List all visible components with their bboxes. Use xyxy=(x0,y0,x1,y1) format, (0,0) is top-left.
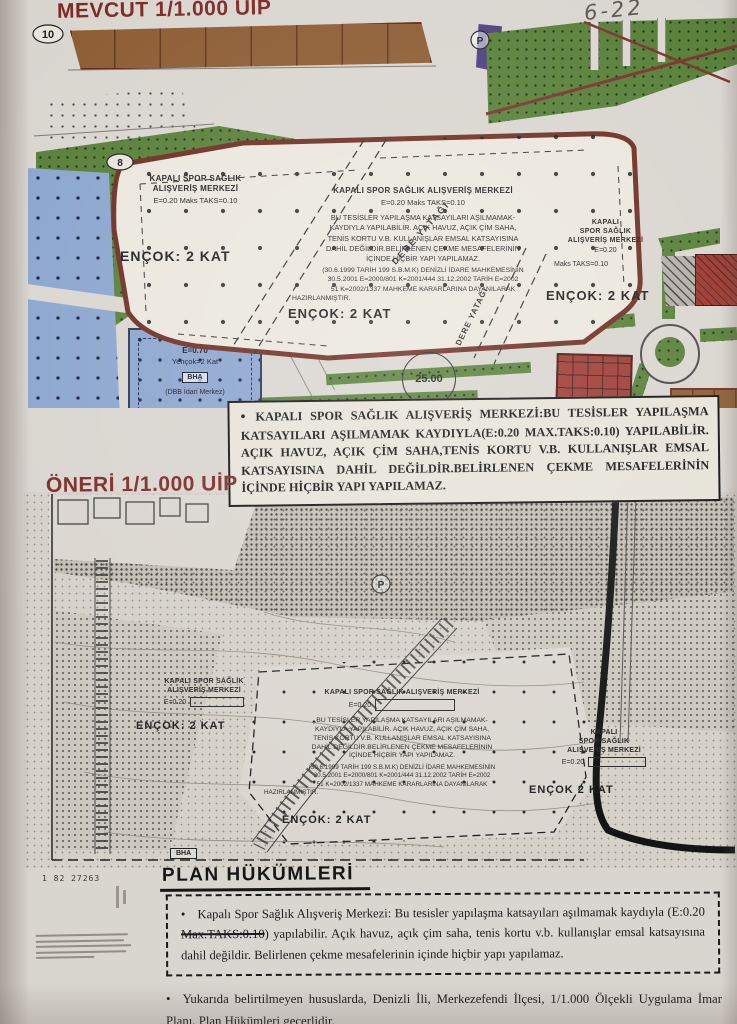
parking-p-label: P xyxy=(378,580,385,591)
provision-line: DAHİL DEĞİLDİR.BELİRLENEN ÇEKME MESAFELE… xyxy=(278,244,568,253)
facility-name-line2: SPOR SAĞLIK xyxy=(548,228,663,237)
facility-name-line3: ALIŞVERİŞ MERKEZİ xyxy=(548,237,663,246)
road-width-10-label: 10 xyxy=(42,29,54,41)
coefficient-value: E=0.20 xyxy=(349,702,371,709)
facility-coefficients: E=0.20 Maks TAKS=0.10 xyxy=(113,196,278,205)
sheet-scale-note: 1 82 27263 xyxy=(42,874,100,883)
max-floors-left: ENÇOK: 2 KAT xyxy=(136,720,225,732)
coefficient-value: E=0.20 xyxy=(562,759,584,766)
main-road-thick xyxy=(596,494,735,850)
map2-center-annotation: KAPALI SPOR SAĞLIK ALIŞVERİŞ MERKEZİ E=0… xyxy=(252,688,552,797)
bullet-icon: • xyxy=(240,410,245,425)
facility-coefficient: E=0.20 xyxy=(252,699,552,711)
provision-line: İÇİNDE HİÇBİR YAPI YAPILAMAZ. xyxy=(278,254,568,263)
building-envelope-symbol xyxy=(375,699,455,711)
margin-tick xyxy=(116,886,119,908)
coefficient-value: E=0.20 xyxy=(164,699,186,706)
map1-left-annotation: KAPALI SPOR SAĞLIK ALIŞVERİŞ MERKEZİ E=0… xyxy=(113,174,278,205)
plan-provision-item-1: •Kapalı Spor Sağlık Alışveriş Merkezi: B… xyxy=(166,892,720,977)
bullet-icon: • xyxy=(166,991,171,1006)
court-ruling-line: 30.5.2001 E=2000/801 K=2001/444 31.12.20… xyxy=(278,276,568,284)
road-edge-lines xyxy=(34,66,436,136)
facility-coefficients: E=0.20 Maks TAKS=0.10 xyxy=(278,198,568,207)
court-ruling-line: 51 K=2002/1337 MAHKEME KARARLARINA DAYAN… xyxy=(252,781,552,789)
court-ruling-line: 30.5.2001 E=2000/801 K=2001/444 31.12.20… xyxy=(252,772,552,780)
zoning-note-box: •KAPALI SPOR SAĞLIK ALIŞVERİŞ MERKEZİ:BU… xyxy=(227,395,720,507)
facility-coefficient: E=0.20 xyxy=(544,757,664,767)
map1-right-annotation: KAPALI SPOR SAĞLIK ALIŞVERİŞ MERKEZİ E=0… xyxy=(548,219,663,270)
plan-provision-item-2: •Yukarıda belirtilmeyen hususlarda, Deni… xyxy=(166,988,722,1024)
map2-right-annotation: KAPALI SPOR SAĞLIK ALIŞVERİŞ MERKEZİ E=0… xyxy=(544,728,664,767)
max-floors-right: ENÇOK: 2 KAT xyxy=(546,288,649,303)
facility-name: KAPALI SPOR SAĞLIK ALIŞVERİŞ MERKEZİ xyxy=(252,688,552,697)
facility-coefficient1: E=0.20 xyxy=(548,247,663,256)
map2-linework: P xyxy=(24,492,737,868)
provision-2-text: Yukarıda belirtilmeyen hususlarda, Deniz… xyxy=(166,992,722,1024)
existing-plan-title: MEVCUT 1/1.000 UİP xyxy=(57,0,272,24)
court-ruling-line: (30.6.1999 TARİH 199 S.B.M.K) DENİZLİ İD… xyxy=(278,267,568,275)
zoning-note-text: KAPALI SPOR SAĞLIK ALIŞVERİŞ MERKEZİ:BU … xyxy=(241,404,710,495)
parking-p-label: P xyxy=(477,36,484,47)
max-floors-center: ENÇOK: 2 KAT xyxy=(282,814,371,826)
bullet-icon: • xyxy=(181,906,186,921)
facility-name-line3: ALIŞVERİŞ MERKEZİ xyxy=(544,746,664,755)
court-ruling-line: HAZIRLANMIŞTIR. xyxy=(278,295,568,303)
scanned-plan-document: MEVCUT 1/1.000 UİP 6-22 25.00 xyxy=(0,0,737,1024)
margin-tick xyxy=(123,890,126,904)
maroon-road-lines xyxy=(486,22,737,114)
proposed-plan-title: ÖNERİ 1/1.000 UİP xyxy=(46,472,238,498)
max-floors-left: ENÇOK: 2 KAT xyxy=(120,248,231,264)
facility-name-line1: KAPALI xyxy=(548,219,663,228)
facility-name-line1: KAPALI SPOR SAĞLIK xyxy=(134,677,274,686)
provision-line: TENİS KORTU V.B. KULLANIŞLAR EMSAL KATSA… xyxy=(252,735,552,744)
provision-line: KAYDIYLA YAPILABİLİR. AÇIK HAVUZ, AÇIK Ç… xyxy=(252,726,552,735)
facility-name-line1: KAPALI SPOR SAĞLIK xyxy=(113,174,278,184)
max-floors-right: ENÇOK 2 KAT xyxy=(529,784,614,796)
provision-1-text-pre: Kapalı Spor Sağlık Alışveriş Merkezi: Bu… xyxy=(197,905,705,922)
building-envelope-symbol xyxy=(190,697,244,707)
provision-1-struck-text: Max.TAKS:0.10 xyxy=(181,927,265,941)
court-ruling-line: 51 K=2002/1337 MAHKEME KARARLARINA DAYAN… xyxy=(278,286,568,294)
facility-name-line2: SPOR SAĞLIK xyxy=(544,737,664,746)
facility-name: KAPALI SPOR SAĞLIK ALIŞVERİŞ MERKEZİ xyxy=(278,186,568,196)
existing-zoning-map: 25.00 E=0.70 Yençok=2 Kat BHA (DBB İdari… xyxy=(28,16,737,408)
provision-line: İÇİNDE HİÇBİR YAPI YAPILAMAZ. xyxy=(252,752,552,761)
proposed-zoning-map: P KAPALI SPOR SAĞLIK ALIŞVERİŞ MERKEZİ E… xyxy=(24,492,737,868)
facility-name-line1: KAPALI xyxy=(544,728,664,737)
court-ruling-line: HAZIRLANMIŞTIR. xyxy=(252,789,552,797)
max-floors-center: ENÇOK: 2 KAT xyxy=(288,306,391,321)
plan-provisions-heading: PLAN HÜKÜMLERİ xyxy=(160,863,370,892)
road-double-lines xyxy=(620,494,636,742)
road-width-8-label: 8 xyxy=(117,158,123,169)
bha-parcel-label: BHA xyxy=(170,848,197,859)
building-footprints xyxy=(58,498,208,524)
building-envelope-symbol xyxy=(588,757,646,767)
provision-line: BU TESİSLER YAPILAŞMA KATSAYILARI AŞILMA… xyxy=(252,717,552,726)
facility-coefficient2: Maks TAKS=0.10 xyxy=(548,261,663,270)
map1-center-annotation: KAPALI SPOR SAĞLIK ALIŞVERİŞ MERKEZİ E=0… xyxy=(278,186,568,304)
fine-print-lines xyxy=(36,933,132,962)
facility-name-line2: ALIŞVERİŞ MERKEZİ xyxy=(113,184,278,194)
